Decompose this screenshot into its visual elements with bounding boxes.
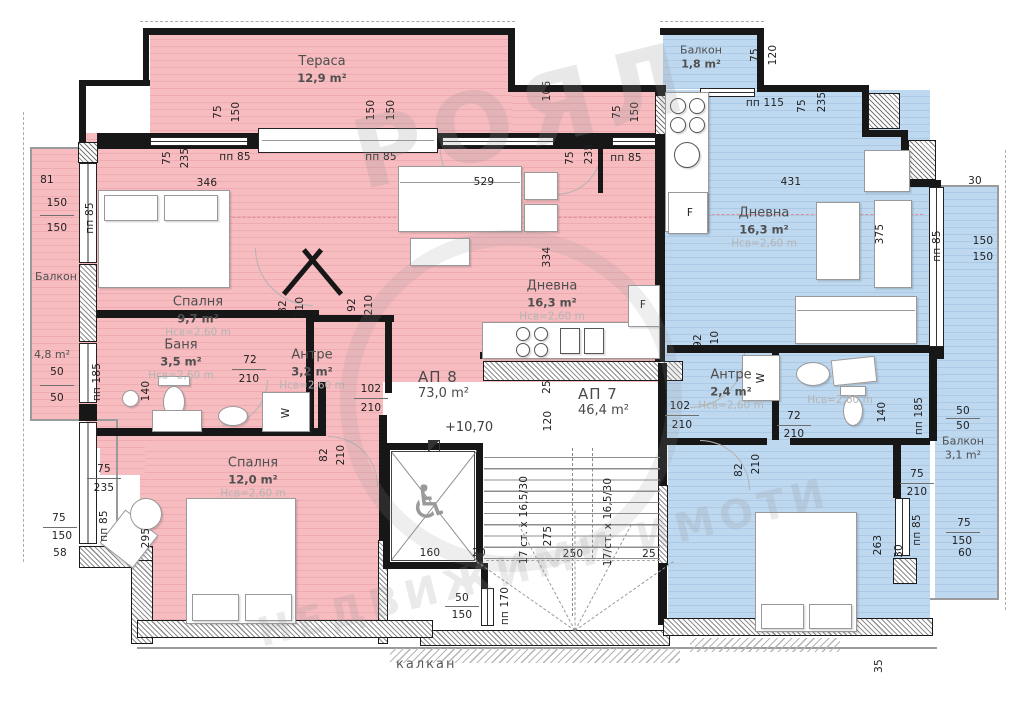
dimension-line	[40, 215, 74, 216]
dimension-label: 92	[692, 334, 704, 348]
ground-hatch	[690, 638, 840, 652]
dimension-label: 250	[563, 548, 584, 560]
bath-sink	[218, 406, 248, 426]
room-name: Балкон	[942, 435, 984, 449]
stair-landing-line	[486, 560, 660, 561]
wall	[508, 28, 515, 91]
wall	[143, 28, 515, 35]
wall-hatched	[420, 630, 670, 646]
dimension-label: 150	[47, 222, 68, 234]
dimension-label: 82	[733, 463, 745, 477]
dimension-label: 210	[335, 445, 347, 466]
room-name: Баня	[148, 337, 214, 354]
dimension-label: 275	[542, 526, 554, 547]
room-label-hall-ap8: Антре 3,2 m² Нсв=2,60 m	[279, 347, 345, 392]
dimension-label: 75	[796, 99, 808, 113]
wall	[658, 563, 667, 625]
table	[816, 202, 860, 280]
room-name: Балкон	[35, 270, 77, 284]
room-label-bedroom-sw: Спалня 12,0 m² Нсв=2,60 m	[220, 455, 286, 500]
wall	[667, 345, 929, 353]
stove-burner	[534, 327, 548, 341]
dimension-line	[900, 483, 934, 484]
room-height: Нсв=2,60 m	[519, 310, 585, 324]
dimension-label: 50	[956, 405, 970, 417]
dimension-label: 150	[47, 197, 68, 209]
sofa-back-line	[400, 182, 520, 183]
wall	[143, 28, 149, 86]
wall	[306, 315, 394, 322]
balcony-edge	[30, 419, 118, 421]
dimension-label: 150	[973, 251, 994, 263]
cabinet	[524, 172, 558, 200]
dimension-label: 140	[876, 402, 888, 423]
dimension-label: 75	[910, 468, 924, 480]
dimension-label: 346	[197, 177, 218, 189]
sofa	[795, 296, 917, 344]
dimension-label: 102	[670, 400, 691, 412]
wall	[385, 315, 392, 393]
dimension-label: 210	[709, 331, 721, 352]
bath-sink	[796, 362, 830, 386]
dimension-label: 263	[872, 535, 884, 556]
apartment-id: АП 8	[418, 368, 469, 386]
dimension-line	[946, 418, 980, 419]
dimension-label: 72	[243, 354, 257, 366]
dimension-label: 30	[968, 175, 982, 187]
dimension-label: пп 85	[931, 230, 943, 261]
cabinet	[524, 204, 558, 232]
dimension-label: 35	[873, 659, 885, 673]
dimension-label: 82	[318, 448, 330, 462]
dimension-label: 72	[787, 410, 801, 422]
coffee-table	[410, 238, 470, 266]
dimension-label: 25	[541, 380, 553, 394]
winder-dashed-line	[575, 511, 576, 631]
wheelchair-icon: ♿	[409, 475, 450, 529]
wall	[80, 80, 150, 86]
room-label-balcony-left: Балкон	[35, 270, 77, 284]
room-area: 9,7 m²	[165, 311, 231, 326]
dimension-label: 50	[50, 392, 64, 404]
door-line	[262, 140, 434, 141]
room-label-balcony-right: Балкон 3,1 m²	[942, 435, 984, 464]
dimension-label: 75	[161, 151, 173, 165]
dimension-line	[946, 532, 980, 533]
wall-hatched	[79, 264, 97, 342]
window	[481, 588, 494, 626]
dimension-label: 17/ст. х 16,5/30	[602, 478, 614, 567]
pillow	[245, 594, 292, 621]
eave-dashed-line	[660, 21, 764, 22]
dimension-label: 75	[957, 517, 971, 529]
room-label-living-ap7: Дневна 16,3 m² Нсв=2,60 m	[731, 205, 797, 250]
stove-burner	[670, 98, 686, 114]
room-area-balcony-left: 4,8 m²	[34, 348, 70, 362]
wall	[508, 85, 666, 92]
room-label-bath-ap8: Баня 3,5 m² Нсв=2,60 m	[148, 337, 214, 382]
room-area: 1,8 m²	[680, 58, 722, 72]
eave-dashed-line	[140, 21, 515, 22]
vanity	[831, 356, 877, 386]
room-height: Нсв=2,60 m	[279, 379, 345, 393]
tv-unit	[864, 150, 910, 192]
dimension-label: 50	[50, 366, 64, 378]
dimension-label: 140	[140, 381, 152, 402]
room-name: Тераса	[297, 54, 346, 71]
dimension-label: 235	[94, 482, 115, 494]
room-label-bath-ap7: Нсв=2,60 m	[807, 394, 873, 408]
dimension-label: 375	[874, 224, 886, 245]
balcony-edge	[930, 598, 999, 600]
dimension-label: пп 85	[84, 202, 96, 233]
room-area: 4,8 m²	[34, 348, 70, 362]
dimension-label: 82	[277, 300, 289, 314]
dimension-label: 150	[452, 609, 473, 621]
room-height: Нсв=2,60 m	[807, 394, 873, 408]
room-name: Антре	[279, 347, 345, 364]
floor-plan: ♿	[0, 0, 1013, 710]
room-height: Нсв=2,60 m	[220, 487, 286, 501]
dimension-label: 529	[474, 176, 495, 188]
dimension-label: 235	[583, 144, 595, 165]
dimension-label: 20	[472, 547, 486, 559]
level-value: +10,70	[445, 420, 493, 435]
dimension-label: 75	[611, 105, 623, 119]
apartment-area: 46,4 m²	[578, 403, 629, 418]
window	[150, 137, 248, 146]
dimension-label: пп 85	[610, 152, 641, 164]
room-area: 3,5 m²	[148, 354, 214, 369]
wall	[929, 353, 937, 441]
dimension-label: 81	[40, 174, 54, 186]
wall	[79, 80, 86, 144]
window	[442, 137, 554, 146]
wall-hatched	[483, 361, 683, 381]
dimension-label: 60	[958, 547, 972, 559]
dimension-label: 150	[952, 535, 973, 547]
room-area: 16,3 m²	[519, 295, 585, 310]
sofa	[398, 166, 522, 232]
dimension-label: 235	[816, 92, 828, 113]
dimension-line	[40, 385, 74, 386]
elevator-wall	[383, 443, 390, 569]
dimension-label: 210	[363, 295, 375, 316]
dimension-label: 150	[230, 102, 242, 123]
room-area: 2,4 m²	[698, 384, 764, 399]
pillow	[192, 594, 239, 621]
dimension-label: 210	[672, 419, 693, 431]
dimension-label: 75	[97, 463, 111, 475]
room-name: Спалня	[165, 294, 231, 311]
kitchen-sink	[674, 142, 700, 168]
party-wall-label: калкан	[396, 653, 456, 672]
wall	[79, 404, 97, 421]
room-name: Спалня	[220, 455, 286, 472]
room-label-terrace: Тераса 12,9 m²	[297, 54, 346, 86]
wall	[757, 85, 869, 92]
dimension-label: пп 115	[746, 97, 784, 109]
pillow	[761, 604, 804, 629]
stove-burner	[689, 98, 705, 114]
room-height: Нсв=2,60 m	[148, 369, 214, 383]
dimension-label: 75	[749, 48, 761, 62]
side-table	[130, 498, 162, 530]
dimension-label: 210	[784, 428, 805, 440]
stair-dashed-line	[592, 448, 593, 558]
dimension-label: 17 ст. х 16,5/30	[518, 476, 530, 564]
dimension-label: пп 185	[91, 363, 103, 401]
stove-burner	[670, 117, 686, 133]
dimension-label: 210	[907, 486, 928, 498]
dimension-label: пп 85	[219, 151, 250, 163]
room-label-hall-ap7: Антре 2,4 m² Нсв=2,60 m	[698, 367, 764, 412]
wall-hatched	[893, 558, 917, 584]
vanity	[152, 410, 202, 432]
dimension-label: 120	[542, 411, 554, 432]
room-area: 16,3 m²	[731, 222, 797, 237]
apartment-id: АП 7	[578, 385, 629, 403]
level-symbol-icon	[428, 440, 440, 452]
wall-insulated	[908, 140, 936, 180]
dimension-label: 150	[365, 100, 377, 121]
dimension-line	[87, 478, 121, 479]
dimension-label: пп 85	[98, 510, 110, 541]
dimension-label: 50	[956, 420, 970, 432]
dimension-label: 150	[629, 102, 641, 123]
dimension-label: пп 170	[499, 587, 511, 625]
dimension-label: 431	[781, 176, 802, 188]
balcony-edge	[30, 147, 32, 421]
dimension-label: 92	[346, 298, 358, 312]
room-area: 12,9 m²	[297, 71, 346, 86]
dimension-label: 150	[52, 530, 73, 542]
sofa-back-line	[797, 310, 915, 311]
stove-burner	[534, 343, 548, 357]
dimension-line	[43, 527, 77, 528]
dimension-label: 210	[750, 454, 762, 475]
dimension-label: F	[640, 299, 646, 311]
eave-dashed-line	[23, 112, 24, 562]
room-name: Дневна	[731, 205, 797, 222]
level-mark: +10,70	[445, 416, 493, 435]
elevator-wall	[383, 562, 483, 569]
room-label-balcony-top: Балкон 1,8 m²	[680, 44, 722, 73]
room-area: 3,2 m²	[279, 364, 345, 379]
kitchen-sink	[560, 328, 580, 354]
pillow	[164, 195, 218, 221]
room-name: Балкон	[680, 44, 722, 58]
dimension-label: 75	[564, 151, 576, 165]
pillow	[809, 604, 852, 629]
kitchen-sink	[584, 328, 604, 354]
dimension-label: F	[687, 207, 693, 219]
balcony-edge	[997, 185, 999, 600]
dimension-label: 120	[767, 45, 779, 66]
room-area: 3,1 m²	[942, 449, 984, 463]
room-label-bedroom-nw: Спалня 9,7 m² Нсв=2,60 m	[165, 294, 231, 339]
dimension-label: пп 85	[365, 151, 396, 163]
dimension-label: 334	[541, 247, 553, 268]
pillow	[104, 195, 158, 221]
dimension-line	[354, 398, 388, 399]
dimension-label: 210	[361, 402, 382, 414]
dimension-label: 210	[239, 373, 260, 385]
wall	[660, 28, 764, 35]
dimension-label: 235	[179, 148, 191, 169]
stove-burner	[689, 117, 705, 133]
dimension-label: W	[755, 373, 767, 384]
window	[929, 187, 944, 347]
stair-dashed-line	[572, 448, 573, 616]
dimension-label: 106	[541, 81, 553, 102]
dimension-label: 75	[212, 105, 224, 119]
window	[612, 137, 656, 146]
apartment-area: 73,0 m²	[418, 386, 469, 401]
dimension-label: 58	[53, 547, 67, 559]
dimension-label: пп 185	[913, 397, 925, 435]
pedestal-basin	[122, 390, 139, 407]
room-height: Нсв=2,60 m	[698, 399, 764, 413]
dimension-label: 295	[140, 528, 152, 549]
dimension-label: 25	[642, 548, 656, 560]
dimension-line	[232, 369, 266, 370]
wall-insulated	[868, 93, 900, 129]
door-leaf	[598, 147, 603, 193]
dimension-label: 150	[973, 235, 994, 247]
dimension-label: 50	[455, 592, 469, 604]
dimension-label: 75	[52, 512, 66, 524]
wall-insulated	[78, 142, 98, 163]
dimension-label: 210	[294, 297, 306, 318]
dimension-label: 30	[893, 544, 905, 558]
dimension-label: 102	[361, 383, 382, 395]
wall	[893, 440, 901, 498]
dimension-line	[665, 415, 699, 416]
apartment-label-ap7: АП 7 46,4 m²	[578, 385, 629, 418]
apartment-label-ap8: АП 8 73,0 m²	[418, 368, 469, 401]
eave-dashed-line	[1005, 150, 1006, 610]
room-name: Антре	[698, 367, 764, 384]
room-name: Дневна	[519, 278, 585, 295]
dimension-line	[445, 606, 479, 607]
room-height: Нсв=2,60 m	[731, 237, 797, 251]
room-area: 12,0 m²	[220, 472, 286, 487]
dimension-label: W	[280, 408, 292, 419]
dimension-label: 160	[420, 547, 441, 559]
stove-burner	[516, 343, 530, 357]
dimension-label: пп 85	[911, 514, 923, 545]
room-label-living-ap8: Дневна 16,3 m² Нсв=2,60 m	[519, 278, 585, 323]
wall	[790, 438, 930, 445]
stove-burner	[516, 327, 530, 341]
dimension-label: 150	[385, 100, 397, 121]
dimension-line	[777, 425, 811, 426]
